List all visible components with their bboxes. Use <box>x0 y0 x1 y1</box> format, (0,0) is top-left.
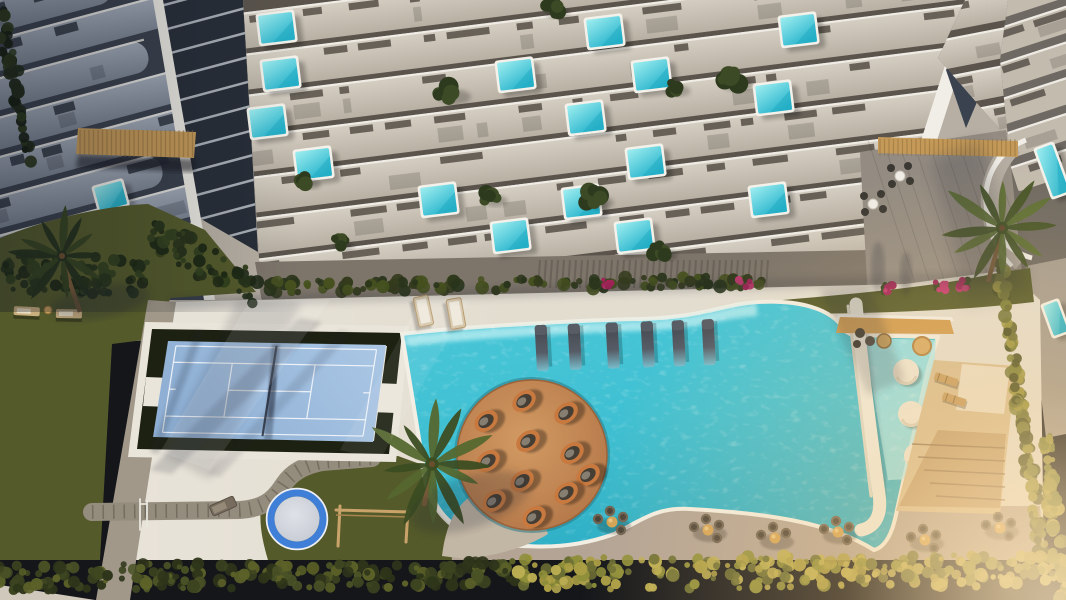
hedge-leaf <box>506 576 513 583</box>
hedge-leaf <box>551 565 561 575</box>
hedge-leaf <box>521 276 528 283</box>
glass-reflection <box>476 122 488 138</box>
hedge-leaf <box>326 562 333 569</box>
in-pool-lounger <box>606 322 624 369</box>
hedge-leaf <box>380 567 392 579</box>
flower-bloom <box>601 278 605 282</box>
round-kids-pool <box>267 489 327 549</box>
hedge-leaf <box>559 577 568 586</box>
hedge-leaf <box>68 576 80 588</box>
window-slot <box>339 86 349 94</box>
hedge-leaf <box>119 576 125 582</box>
hedge-leaf <box>295 571 300 576</box>
foliage-blob <box>540 0 552 12</box>
glass-reflection <box>522 115 542 132</box>
foliage-blob <box>728 67 740 79</box>
hedge-leaf <box>303 280 311 288</box>
hedge-leaf <box>509 558 515 564</box>
hedge-leaf <box>136 564 145 573</box>
hedge-leaf <box>433 282 439 288</box>
hedge-leaf <box>527 573 537 583</box>
foliage-blob <box>658 248 672 262</box>
hedge-leaf <box>227 584 235 592</box>
hedge-leaf <box>410 579 422 591</box>
hedge-leaf <box>181 566 189 574</box>
hedge-leaf <box>306 584 312 590</box>
hedge-leaf <box>414 565 419 570</box>
hedge-leaf <box>258 573 269 584</box>
hedge-leaf <box>618 271 632 285</box>
glass-reflection <box>520 34 535 50</box>
window-slot <box>615 134 626 142</box>
hedge-leaf <box>384 583 393 592</box>
hedge-leaf <box>502 568 508 574</box>
glass-reflection <box>707 133 730 150</box>
foliage-blob <box>484 190 496 202</box>
glass-reflection <box>806 79 830 96</box>
hedge-leaf <box>187 580 200 593</box>
hedge-leaf <box>31 578 43 590</box>
cafe-chair <box>904 162 912 170</box>
hedge-leaf <box>426 576 438 588</box>
lounger-back <box>641 321 654 332</box>
in-pool-lounger <box>535 325 553 372</box>
round-pool-center <box>275 497 320 542</box>
hedge-leaf <box>441 566 454 579</box>
glass-reflection <box>465 205 487 222</box>
hedge-leaf <box>512 565 525 578</box>
hedge-leaf <box>53 561 66 574</box>
hedge-leaf <box>315 278 321 284</box>
aerial-render-stage <box>0 0 1066 600</box>
foliage-blob <box>335 240 346 251</box>
hedge-leaf <box>564 563 573 572</box>
foliage-blob <box>331 235 339 243</box>
hedge-leaf <box>365 280 372 287</box>
hedge-leaf <box>231 572 237 578</box>
hedge-leaf <box>455 563 467 575</box>
foliage-blob <box>670 81 683 94</box>
hedge-leaf <box>157 571 169 583</box>
hedge-leaf <box>402 580 408 586</box>
hedge-leaf <box>532 562 538 568</box>
hedge-leaf <box>13 583 22 592</box>
scene-svg <box>0 0 1066 600</box>
hedge-leaf <box>42 583 48 589</box>
hedge-leaf <box>323 278 334 289</box>
hedge-leaf <box>544 584 552 592</box>
hedge-leaf <box>119 566 127 574</box>
hedge-leaf <box>367 581 380 594</box>
hedge-leaf <box>180 585 186 591</box>
hedge-leaf <box>353 577 364 588</box>
hedge-leaf <box>533 277 543 287</box>
hedge-leaf <box>282 561 293 572</box>
hedge-leaf <box>325 582 335 592</box>
hedge-leaf <box>140 577 153 590</box>
lounger-back <box>606 322 619 333</box>
hedge-leaf <box>488 560 499 571</box>
hedge-leaf <box>121 561 127 567</box>
hedge-leaf <box>52 575 60 583</box>
hedge-leaf <box>314 580 325 591</box>
in-pool-lounger <box>568 323 586 370</box>
hedge-leaf <box>83 585 91 593</box>
hedge-leaf <box>447 275 460 288</box>
window-slot <box>766 73 777 81</box>
hedge-leaf <box>519 554 531 566</box>
hedge-leaf <box>164 562 171 569</box>
hedge-leaf <box>576 278 582 284</box>
hedge-leaf <box>478 276 485 283</box>
lounger-back <box>568 324 581 335</box>
hedge-leaf <box>177 564 182 569</box>
hedge-leaf <box>35 570 42 577</box>
hedge-leaf <box>334 559 344 569</box>
hedge-leaf <box>331 575 340 584</box>
window-slot <box>423 34 435 42</box>
cafe-chair <box>887 164 895 172</box>
lounger-back <box>535 325 548 336</box>
hedge-leaf <box>364 569 370 575</box>
hedge-leaf <box>446 579 459 592</box>
hedge-leaf <box>392 560 402 570</box>
foliage-blob <box>298 176 313 191</box>
hedge-leaf <box>476 556 489 569</box>
hedge-leaf <box>149 567 159 577</box>
hedge-leaf <box>539 570 548 579</box>
hedge-leaf <box>12 561 22 571</box>
hedge-leaf <box>216 560 228 572</box>
hedge-leaf <box>248 561 257 570</box>
left-vignette <box>0 0 300 312</box>
hedge-leaf <box>218 579 226 587</box>
hedge-leaf <box>168 578 175 585</box>
foliage-blob <box>654 242 662 250</box>
hedge-leaf <box>238 569 250 581</box>
foliage-blob <box>718 75 728 85</box>
hedge-leaf <box>416 573 422 579</box>
foliage-blob <box>593 191 608 206</box>
hedge-leaf <box>342 566 353 577</box>
hedge-leaf <box>346 560 352 566</box>
hedge-leaf <box>307 562 320 575</box>
palm-center <box>429 461 435 467</box>
hedge-leaf <box>272 566 283 577</box>
hedge-leaf <box>474 574 483 583</box>
hedge-leaf <box>376 280 389 293</box>
hedge-leaf <box>102 570 113 581</box>
hedge-leaf <box>503 281 510 288</box>
hedge-leaf <box>192 558 205 571</box>
foliage-blob <box>551 0 564 13</box>
hedge-leaf <box>657 273 667 283</box>
hedge-leaf <box>412 279 418 285</box>
hedge-leaf <box>132 585 140 593</box>
foliage-blob <box>442 91 456 105</box>
hedge-leaf <box>641 275 647 281</box>
